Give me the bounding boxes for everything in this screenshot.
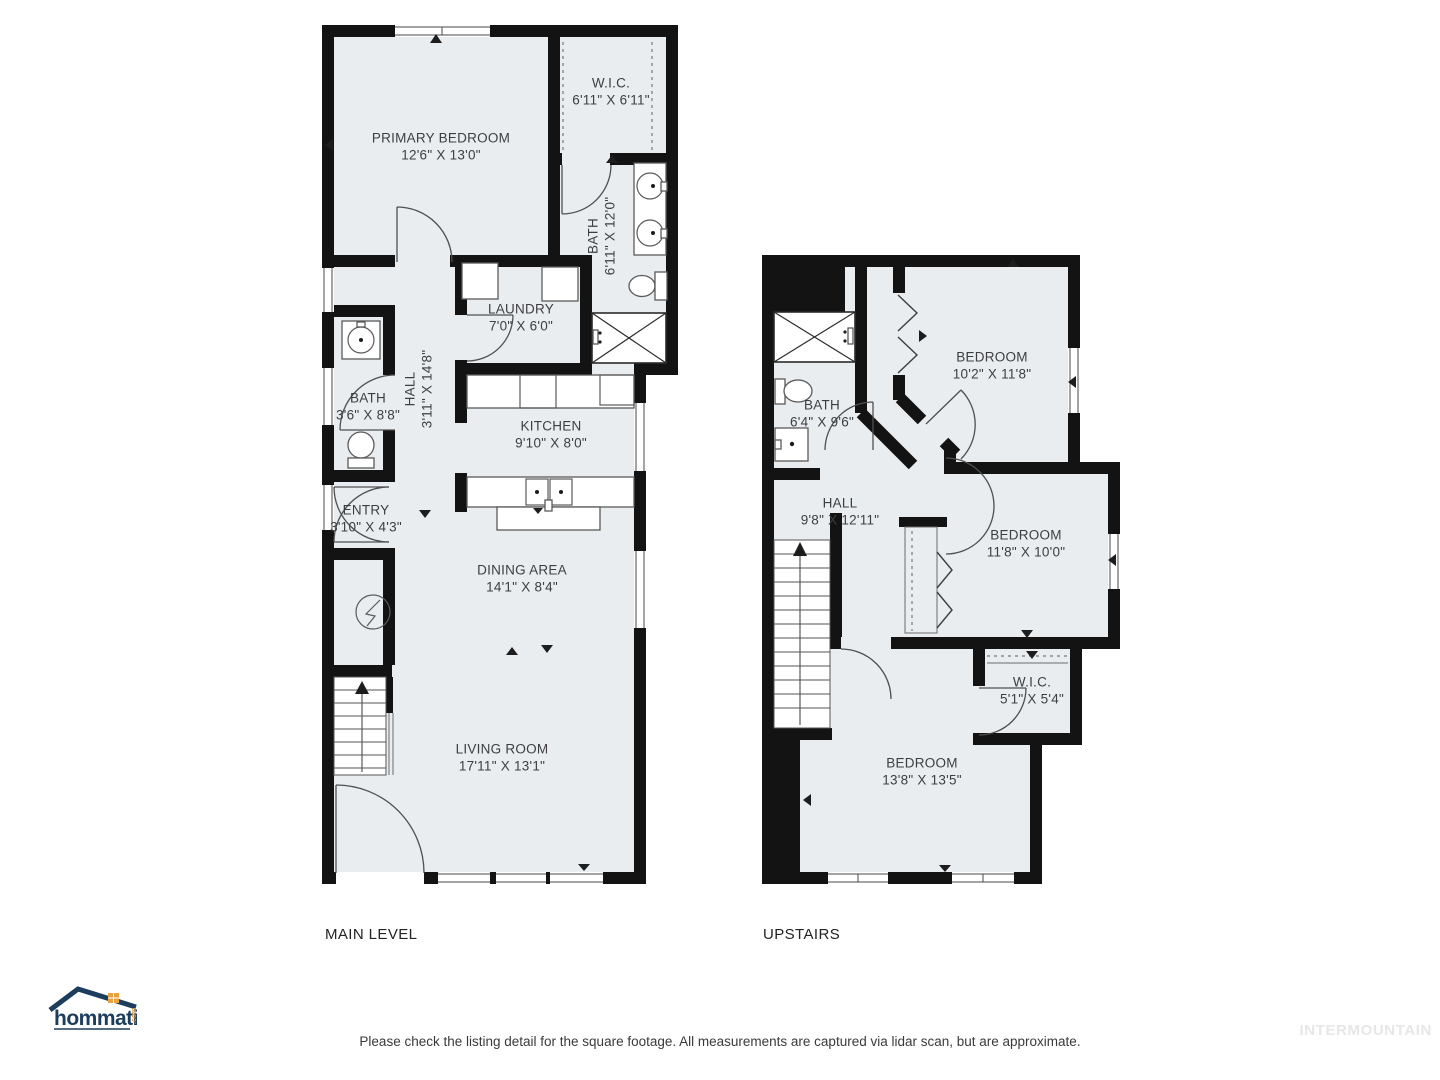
room-label-entry: ENTRY 3'10" X 4'3" <box>330 503 402 536</box>
room-dims: 9'10" X 8'0" <box>515 435 587 452</box>
room-label-bath-small: BATH 3'6" X 8'8" <box>336 391 400 424</box>
room-dims: 3'10" X 4'3" <box>330 519 402 536</box>
room-name: HALL <box>403 350 420 429</box>
plan-title-main-level: MAIN LEVEL <box>325 926 417 943</box>
room-name: BEDROOM <box>882 756 962 773</box>
room-label-living-room: LIVING ROOM 17'11" X 13'1" <box>456 742 549 775</box>
logo-window-icon <box>108 993 119 1003</box>
toilet-icon <box>348 432 374 468</box>
room-name: PRIMARY BEDROOM <box>372 131 510 148</box>
main-stairs <box>334 677 393 775</box>
room-name: BATH <box>586 197 603 276</box>
room-dims: 9'8" X 12'11" <box>801 512 880 529</box>
upstairs-stairs <box>774 540 830 728</box>
room-dims: 14'1" X 8'4" <box>477 579 567 596</box>
logo-suffix: .com <box>131 1008 138 1024</box>
room-name: ENTRY <box>330 503 402 520</box>
vanity-sink-icon <box>634 163 667 255</box>
window <box>952 872 1014 884</box>
room-name: W.I.C. <box>572 76 650 93</box>
room-dims: 5'1" X 5'4" <box>1000 691 1064 708</box>
window <box>550 872 603 884</box>
disclaimer-text: Please check the listing detail for the … <box>0 1034 1440 1049</box>
room-name: BATH <box>336 391 400 408</box>
window <box>322 368 334 425</box>
room-label-wic-main: W.I.C. 6'11" X 6'11" <box>572 76 650 109</box>
room-name: BATH <box>790 398 854 415</box>
room-name: HALL <box>801 496 880 513</box>
window <box>322 268 334 312</box>
room-dims: 7'0" X 6'0" <box>488 318 554 335</box>
room-dims: 6'11" X 6'11" <box>572 92 650 109</box>
room-dims: 12'6" X 13'0" <box>372 147 510 164</box>
room-name: W.I.C. <box>1000 675 1064 692</box>
room-dims: 13'8" X 13'5" <box>882 772 962 789</box>
intermountain-watermark: INTERMOUNTAIN <box>1299 1022 1432 1039</box>
room-dims: 3'11" X 14'8" <box>419 350 436 429</box>
floor-plan-page: hommati .com PRIMARY BEDROOM 12'6" X 13'… <box>0 0 1440 1080</box>
window <box>395 25 490 37</box>
room-label-wic-upstairs: W.I.C. 5'1" X 5'4" <box>1000 675 1064 708</box>
room-label-bedroom-3: BEDROOM 13'8" X 13'5" <box>882 756 962 789</box>
room-name: DINING AREA <box>477 563 567 580</box>
hommati-logo: hommati .com <box>50 989 138 1030</box>
washer-icon <box>462 263 498 299</box>
room-label-primary-bedroom: PRIMARY BEDROOM 12'6" X 13'0" <box>372 131 510 164</box>
room-label-bath-main: BATH 6'11" X 12'0" <box>586 197 619 276</box>
front-door-gap <box>336 872 424 884</box>
plan-title-upstairs: UPSTAIRS <box>763 926 840 943</box>
window <box>634 403 646 471</box>
dryer-icon <box>542 267 578 301</box>
room-label-dining-area: DINING AREA 14'1" X 8'4" <box>477 563 567 596</box>
room-label-hall-main: HALL 3'11" X 14'8" <box>403 350 436 429</box>
window <box>828 872 888 884</box>
shower-icon <box>592 313 666 363</box>
sink-icon <box>342 321 380 359</box>
upstairs-plan <box>762 255 1120 884</box>
room-label-bath-upstairs: BATH 6'4" X 9'6" <box>790 398 854 431</box>
room-dims: 3'6" X 8'8" <box>336 407 400 424</box>
room-name: KITCHEN <box>515 419 587 436</box>
room-label-kitchen: KITCHEN 9'10" X 8'0" <box>515 419 587 452</box>
room-label-laundry: LAUNDRY 7'0" X 6'0" <box>488 302 554 335</box>
room-label-bedroom-1: BEDROOM 10'2" X 11'8" <box>953 350 1032 383</box>
sink-icon <box>775 428 808 461</box>
window <box>634 551 646 628</box>
room-name: BEDROOM <box>987 528 1066 545</box>
room-dims: 17'11" X 13'1" <box>456 758 549 775</box>
window <box>438 872 490 884</box>
room-name: BEDROOM <box>953 350 1032 367</box>
bathtub-icon <box>774 312 855 362</box>
room-dims: 11'8" X 10'0" <box>987 544 1066 561</box>
room-label-hall-upstairs: HALL 9'8" X 12'11" <box>801 496 880 529</box>
room-dims: 6'4" X 9'6" <box>790 414 854 431</box>
room-name: LIVING ROOM <box>456 742 549 759</box>
room-dims: 10'2" X 11'8" <box>953 366 1032 383</box>
room-label-bedroom-2: BEDROOM 11'8" X 10'0" <box>987 528 1066 561</box>
floor-plan-canvas: hommati .com <box>0 0 1440 1080</box>
window <box>496 872 546 884</box>
room-name: LAUNDRY <box>488 302 554 319</box>
logo-text: hommati <box>54 1007 138 1030</box>
room-dims: 6'11" X 12'0" <box>602 197 619 276</box>
